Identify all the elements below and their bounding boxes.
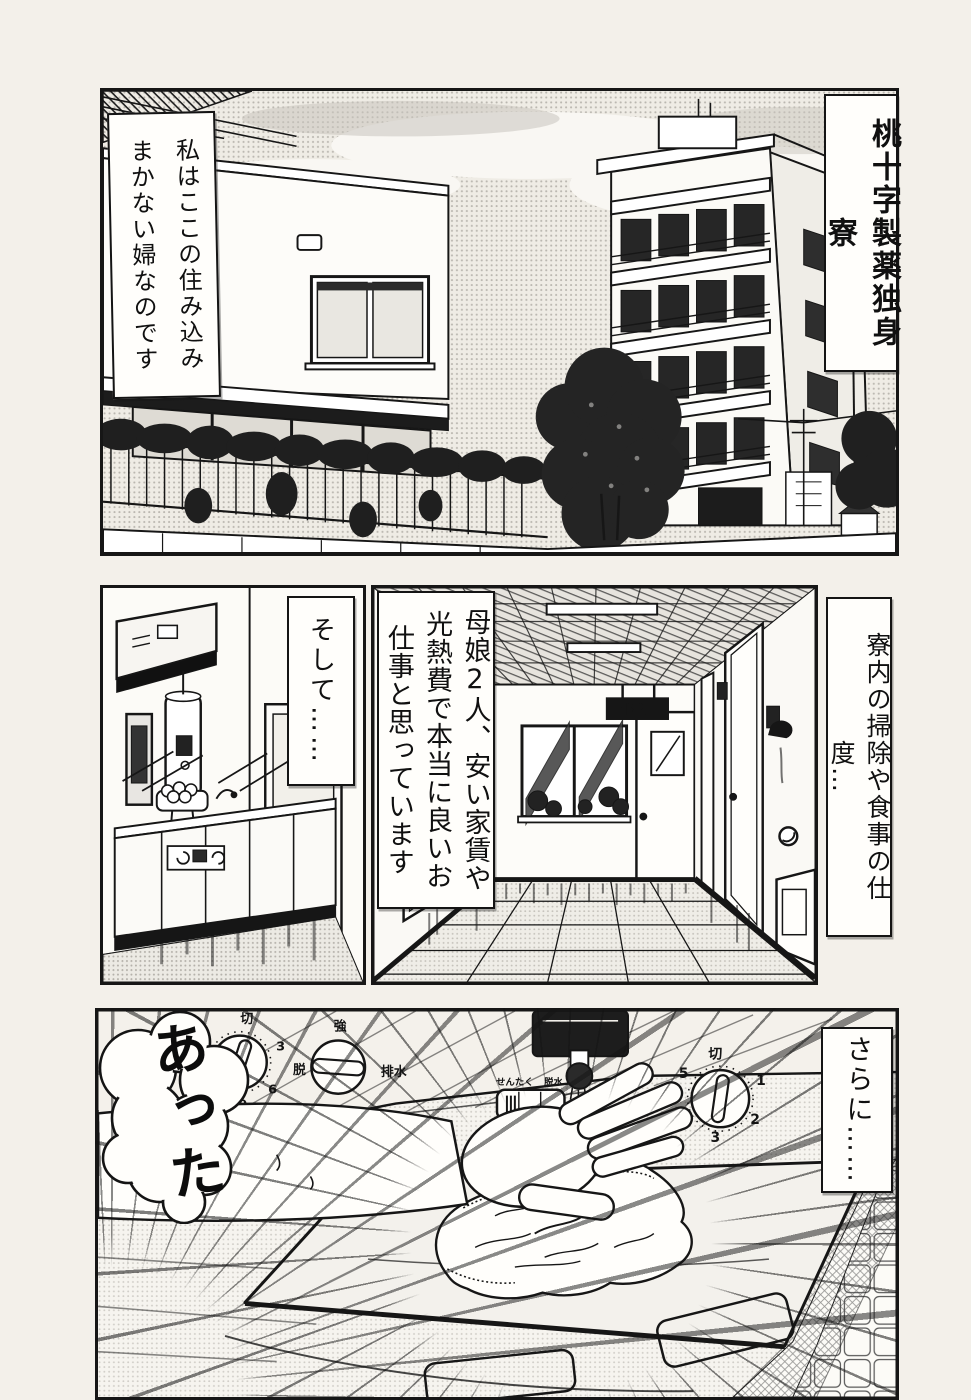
- exterior-art: [103, 91, 896, 553]
- spin-1-label: 1: [756, 1073, 766, 1089]
- caption-dorm-name: 桃十字製薬独身寮: [824, 94, 898, 372]
- panel-exterior: [100, 88, 899, 556]
- spin-3-label: 3: [711, 1130, 721, 1146]
- caption-job-thoughts: 母娘2人、安い家賃や光熱費で本当に良いお仕事と思っています: [377, 591, 495, 909]
- course-right-label: 排水: [381, 1064, 407, 1080]
- switch-left-label: せんたく: [496, 1077, 534, 1088]
- caption-sarani: さらに……: [821, 1027, 893, 1193]
- caption-chores: 寮内の掃除や食事の仕度…: [826, 597, 892, 937]
- spin-2-label: 2: [750, 1112, 760, 1128]
- exit-sign-label: 非常口: [621, 702, 654, 716]
- spin-5-label: 5: [679, 1066, 689, 1082]
- caption-narration-intro: 私はここの住み込みまかない婦なのです: [107, 111, 221, 399]
- caption-soshite-text: そして……: [303, 616, 340, 766]
- caption-soshite: そして……: [287, 596, 355, 786]
- spin-off-label: 切: [708, 1046, 722, 1062]
- course-left-label: 脱: [293, 1062, 306, 1078]
- caption-job-thoughts-text: 母娘2人、安い家賃や光熱費で本当に良いお仕事と思っています: [379, 603, 494, 897]
- caption-narration-intro-text: 私はここの住み込みまかない婦なのです: [116, 125, 213, 385]
- end-wall: 非常口: [492, 685, 694, 882]
- timer-3-label: 3: [276, 1039, 285, 1054]
- manga-page: 非常口: [0, 0, 971, 1400]
- caption-chores-text: 寮内の掃除や食事の仕度…: [823, 609, 895, 925]
- exclamation-bubble: あった: [92, 1006, 270, 1224]
- switch-right-label: 脱水: [544, 1076, 563, 1088]
- course-top-label: 強: [334, 1019, 347, 1035]
- caption-dorm-name-text: 桃十字製薬独身寮: [817, 106, 905, 360]
- caption-sarani-text: さらに……: [838, 1035, 877, 1185]
